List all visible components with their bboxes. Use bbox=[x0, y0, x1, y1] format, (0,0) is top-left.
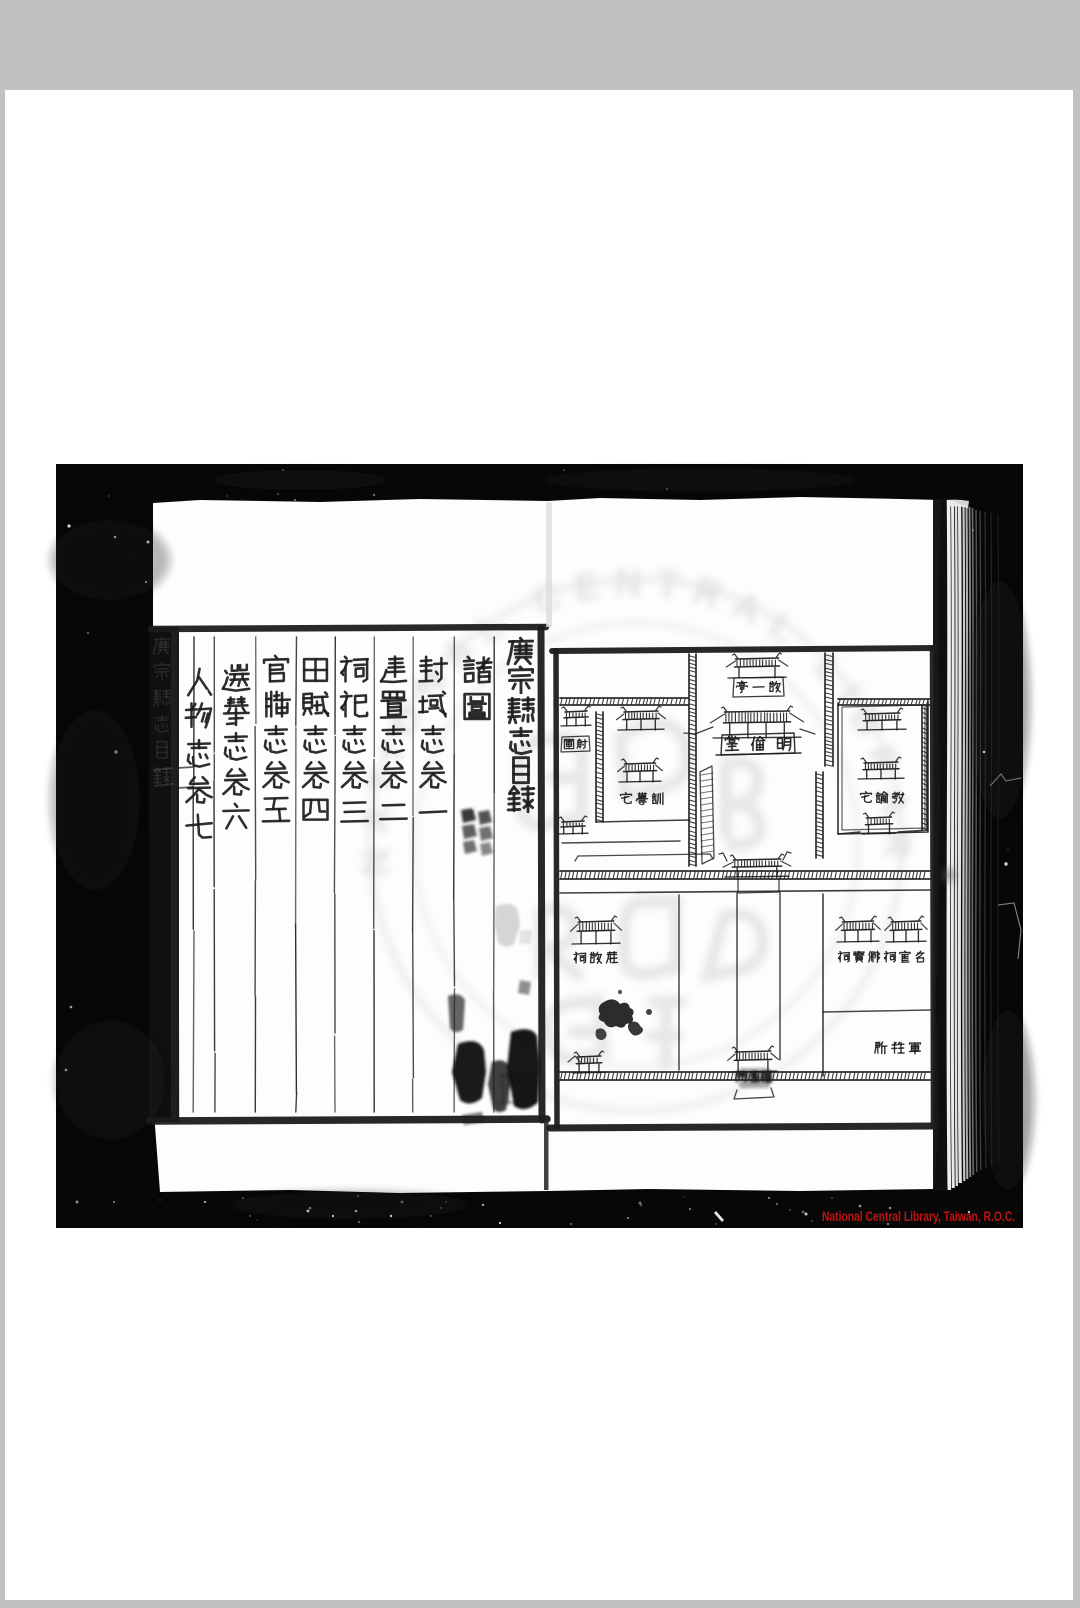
svg-text:National Central Library, Taiw: National Central Library, Taiwan, R.O.C. bbox=[822, 1208, 1015, 1224]
